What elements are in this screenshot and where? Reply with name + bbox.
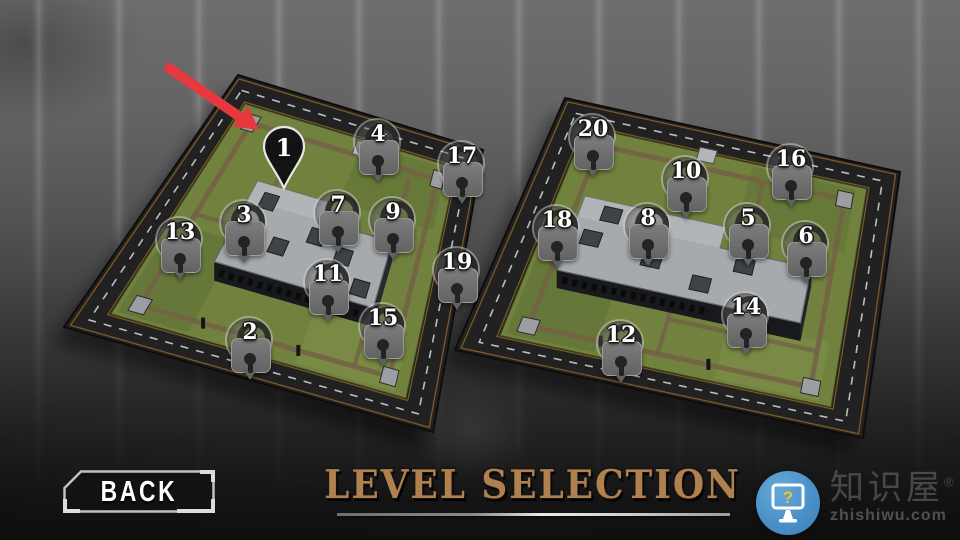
pin-level-1-selected[interactable]: 1: [260, 125, 308, 191]
watermark: ? 知识屋® zhishiwu.com: [756, 471, 954, 535]
keyhole-stem-icon: [242, 245, 247, 256]
pin-level-12[interactable]: 12: [597, 320, 645, 384]
keyhole-stem-icon: [391, 242, 396, 253]
pin-level-6[interactable]: 6: [782, 221, 830, 285]
pin-level-7[interactable]: 7: [314, 190, 362, 254]
keyhole-stem-icon: [684, 201, 689, 212]
pin-level-15[interactable]: 15: [359, 303, 407, 367]
keyhole-stem-icon: [555, 250, 560, 261]
keyhole-stem-icon: [336, 235, 341, 246]
keyhole-stem-icon: [646, 248, 651, 259]
pin-level-13[interactable]: 13: [156, 217, 204, 281]
pin-level-number: 12: [597, 322, 645, 348]
question-mark-glyph: ?: [783, 488, 793, 507]
pin-level-number: 2: [226, 319, 274, 345]
keyhole-stem-icon: [178, 262, 183, 273]
pin-level-19[interactable]: 19: [433, 247, 481, 311]
pin-level-number: 8: [624, 205, 672, 231]
pin-level-number: 9: [369, 199, 417, 225]
watermark-domain: zhishiwu.com: [830, 507, 954, 525]
pin-level-number: 4: [354, 121, 402, 147]
pin-level-3[interactable]: 3: [220, 200, 268, 264]
pin-level-number: 7: [314, 192, 362, 218]
pin-level-14[interactable]: 14: [722, 292, 770, 356]
page-title: LEVEL SELECTION: [307, 461, 758, 508]
pin-level-number: 11: [304, 261, 352, 287]
title-block: LEVEL SELECTION: [300, 462, 765, 506]
pin-level-number: 6: [782, 223, 830, 249]
keyhole-stem-icon: [455, 292, 460, 303]
level-pins-layer: 1 4 17 13 3 7: [0, 0, 960, 540]
pin-level-number: 3: [220, 202, 268, 228]
pin-level-number: 17: [438, 143, 486, 169]
monitor-question-icon: ?: [756, 471, 820, 535]
back-button-label: BACK: [72, 467, 206, 515]
keyhole-stem-icon: [460, 186, 465, 197]
keyhole-stem-icon: [804, 266, 809, 277]
keyhole-stem-icon: [248, 362, 253, 373]
pin-level-17[interactable]: 17: [438, 141, 486, 205]
pin-level-number: 5: [724, 205, 772, 231]
pin-level-number: 1: [260, 133, 308, 162]
keyhole-stem-icon: [591, 159, 596, 170]
registered-mark: ®: [944, 475, 954, 490]
pin-level-11[interactable]: 11: [304, 259, 352, 323]
level-selection-screen: 1 4 17 13 3 7: [0, 0, 960, 540]
pin-level-number: 15: [359, 305, 407, 331]
keyhole-stem-icon: [376, 164, 381, 175]
watermark-brand: 知识屋®: [830, 471, 954, 505]
pin-level-number: 10: [662, 158, 710, 184]
pin-level-2[interactable]: 2: [226, 317, 274, 381]
pin-level-9[interactable]: 9: [369, 197, 417, 261]
pin-level-number: 16: [767, 146, 815, 172]
pin-level-number: 13: [156, 219, 204, 245]
pin-level-number: 14: [722, 294, 770, 320]
pin-level-number: 18: [533, 207, 581, 233]
keyhole-stem-icon: [744, 337, 749, 348]
keyhole-stem-icon: [381, 348, 386, 359]
keyhole-stem-icon: [789, 189, 794, 200]
pin-level-20[interactable]: 20: [569, 114, 617, 178]
pin-level-4[interactable]: 4: [354, 119, 402, 183]
back-button[interactable]: BACK: [63, 470, 215, 513]
pin-level-18[interactable]: 18: [533, 205, 581, 269]
pin-level-16[interactable]: 16: [767, 144, 815, 208]
pin-level-number: 20: [569, 116, 617, 142]
pin-level-8[interactable]: 8: [624, 203, 672, 267]
pin-level-number: 19: [433, 249, 481, 275]
keyhole-stem-icon: [746, 248, 751, 259]
title-underline: [337, 513, 730, 516]
keyhole-stem-icon: [326, 304, 331, 315]
pin-level-5[interactable]: 5: [724, 203, 772, 267]
keyhole-stem-icon: [619, 365, 624, 376]
